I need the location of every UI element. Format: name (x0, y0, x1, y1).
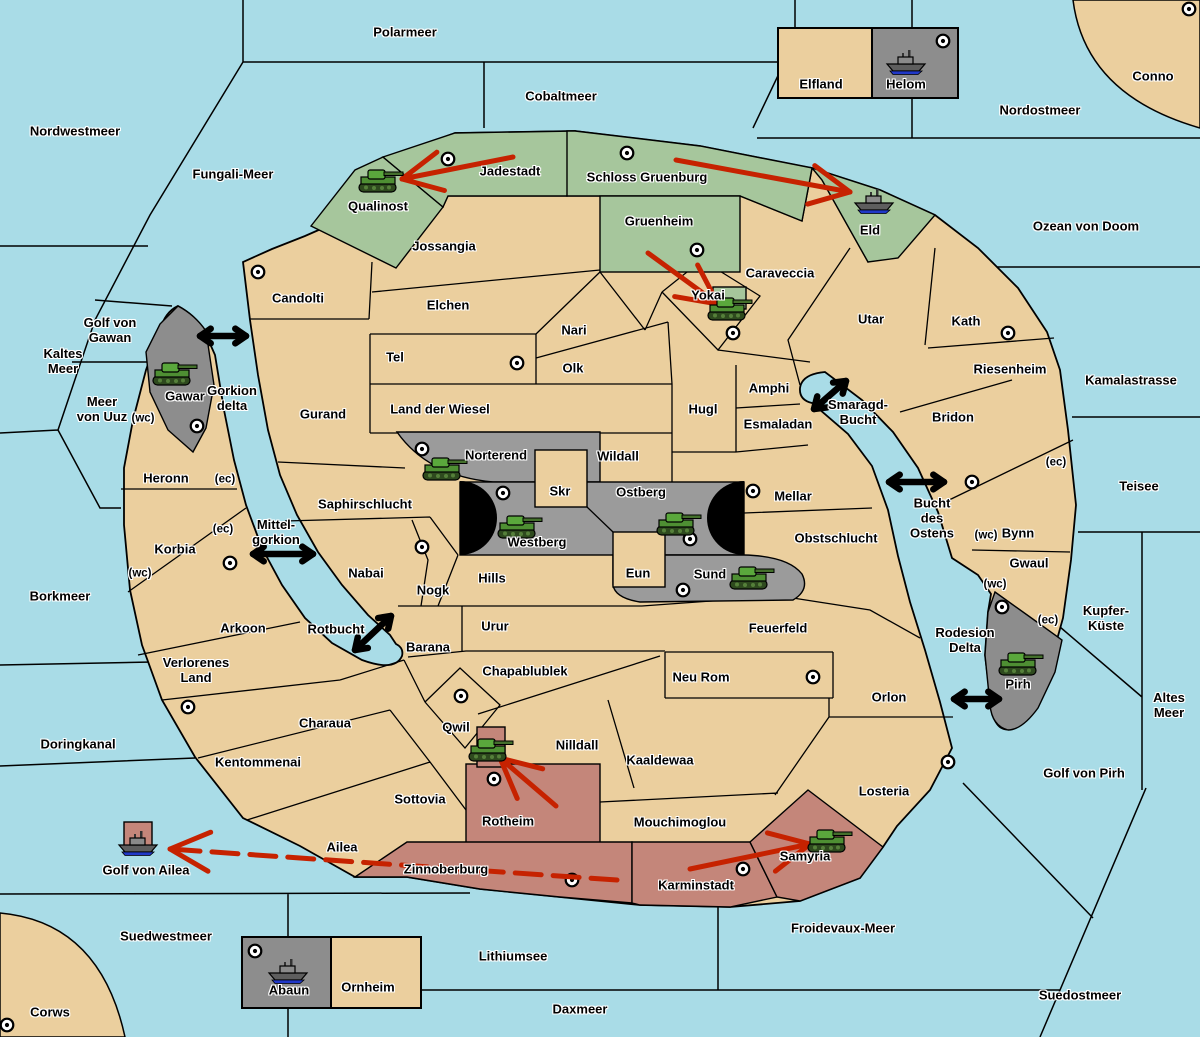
region-label-ostberg[interactable]: Ostberg (616, 486, 666, 501)
region-label-caraveccia[interactable]: Caraveccia (746, 267, 815, 282)
sea-label-ozean-von-doom[interactable]: Ozean von Doom (1033, 220, 1139, 235)
region-label-feuerfeld[interactable]: Feuerfeld (749, 622, 808, 637)
region-label-hills[interactable]: Hills (478, 572, 505, 587)
region-label-heronn[interactable]: Heronn (143, 472, 189, 487)
region-label-kaaldewaa[interactable]: Kaaldewaa (626, 754, 693, 769)
region-label-land-der-wiesel[interactable]: Land der Wiesel (390, 403, 490, 418)
region-label-tel[interactable]: Tel (386, 351, 404, 366)
coast-marker-label: (wc) (129, 567, 152, 580)
sea-label-kamalastrasse[interactable]: Kamalastrasse (1085, 374, 1177, 389)
region-label-urur[interactable]: Urur (481, 620, 508, 635)
region-label-pirh[interactable]: Pirh (1005, 678, 1030, 693)
region-label-bridon[interactable]: Bridon (932, 411, 974, 426)
region-label-neu-rom[interactable]: Neu Rom (672, 671, 729, 686)
city-marker-karminstadt[interactable] (737, 863, 750, 876)
region-label-samyria[interactable]: Samyria (780, 850, 831, 865)
city-marker-schloss-gruenburg[interactable] (621, 147, 634, 160)
region-label-skr[interactable]: Skr (550, 485, 571, 500)
region-label-gwaul[interactable]: Gwaul (1009, 557, 1048, 572)
sea-label-cobaltmeer[interactable]: Cobaltmeer (525, 90, 597, 105)
region-label-mouchimoglou[interactable]: Mouchimoglou (634, 816, 726, 831)
region-label-kentommenai[interactable]: Kentommenai (215, 756, 301, 771)
region-label-chapablublek[interactable]: Chapablublek (482, 665, 567, 680)
region-label-amphi[interactable]: Amphi (749, 382, 789, 397)
city-marker-abaun[interactable] (249, 945, 262, 958)
region-label-karminstadt[interactable]: Karminstadt (658, 879, 734, 894)
region-label-obstschlucht[interactable]: Obstschlucht (794, 532, 877, 547)
region-label-arkoon[interactable]: Arkoon (220, 622, 266, 637)
region-label-candolti[interactable]: Candolti (272, 292, 324, 307)
sea-label-polarmeer[interactable]: Polarmeer (373, 26, 437, 41)
region-label-riesenheim[interactable]: Riesenheim (974, 363, 1047, 378)
city-marker-yokai[interactable] (727, 327, 740, 340)
region-label-wildall[interactable]: Wildall (597, 450, 639, 465)
region-label-saphirschlucht[interactable]: Saphirschlucht (318, 498, 412, 513)
region-label-korbia[interactable]: Korbia (154, 543, 195, 558)
arrowhead (814, 407, 827, 409)
region-label-barana[interactable]: Barana (406, 641, 450, 656)
sea-label-suedwestmeer[interactable]: Suedwestmeer (120, 930, 212, 945)
sea-label-meer-von-uuz[interactable]: Meer von Uuz (77, 395, 128, 425)
arrowhead (170, 832, 211, 849)
region-conno-shape[interactable] (1073, 0, 1200, 128)
region-label-ailea[interactable]: Ailea (326, 841, 357, 856)
region-label-nilldall[interactable]: Nilldall (556, 739, 599, 754)
region-label-ornheim[interactable]: Ornheim (341, 981, 394, 996)
city-marker-jadestadt[interactable] (442, 153, 455, 166)
coast-marker-label: (wc) (132, 412, 155, 425)
city-marker-saphirschlucht[interactable] (416, 541, 429, 554)
region-label-abaun[interactable]: Abaun (269, 984, 309, 999)
region-label-corws[interactable]: Corws (30, 1006, 70, 1021)
sea-label-smaragd-bucht[interactable]: Smaragd- Bucht (828, 398, 888, 428)
sea-label-altes-meer[interactable]: Altes Meer (1153, 691, 1185, 721)
region-label-qwil[interactable]: Qwil (442, 721, 469, 736)
sea-label-golf-von-gawan[interactable]: Golf von Gawan (84, 316, 137, 346)
region-label-rotheim[interactable]: Rotheim (482, 815, 534, 830)
arrowhead (355, 648, 368, 650)
sea-label-lithiumsee[interactable]: Lithiumsee (479, 950, 548, 965)
city-marker-candolti[interactable] (252, 266, 265, 279)
city-marker-neu-rom[interactable] (807, 671, 820, 684)
region-label-orlon[interactable]: Orlon (872, 691, 907, 706)
sea-label-doringkanal[interactable]: Doringkanal (40, 738, 115, 753)
city-marker-kath[interactable] (1002, 327, 1015, 340)
region-label-losteria[interactable]: Losteria (859, 785, 910, 800)
sea-label-mittel-gorkion[interactable]: Mittel- gorkion (252, 518, 300, 548)
region-label-qualinost[interactable]: Qualinost (348, 200, 408, 215)
city-marker-gawar[interactable] (191, 420, 204, 433)
city-marker-conno[interactable] (1183, 3, 1196, 16)
coast-marker-label: (ec) (215, 473, 235, 486)
coast-marker-label: (ec) (1046, 456, 1066, 469)
region-label-nari[interactable]: Nari (561, 324, 586, 339)
sea-label-nordostmeer[interactable]: Nordostmeer (1000, 104, 1081, 119)
coast-marker-label: (ec) (213, 523, 233, 536)
city-marker-mellar[interactable] (747, 485, 760, 498)
sea-label-kaltes-meer[interactable]: Kaltes Meer (43, 347, 82, 377)
sea-label-daxmeer[interactable]: Daxmeer (553, 1003, 608, 1018)
region-label-eld[interactable]: Eld (860, 224, 880, 239)
region-label-charaua[interactable]: Charaua (299, 717, 351, 732)
coast-marker-label: (ec) (1038, 614, 1058, 627)
region-label-verlorenes-land[interactable]: Verlorenes Land (163, 656, 230, 686)
sea-label-kupfer-k-ste[interactable]: Kupfer- Küste (1083, 604, 1129, 634)
region-label-westberg[interactable]: Westberg (508, 536, 567, 551)
city-marker-corws[interactable] (1, 1019, 14, 1032)
region-label-utar[interactable]: Utar (858, 313, 884, 328)
region-label-mellar[interactable]: Mellar (774, 490, 812, 505)
region-label-schloss-gruenburg[interactable]: Schloss Gruenburg (587, 171, 708, 186)
region-label-nabai[interactable]: Nabai (348, 567, 383, 582)
city-marker-korbia[interactable] (224, 557, 237, 570)
city-marker-charaua[interactable] (182, 701, 195, 714)
city-marker-tel[interactable] (511, 357, 524, 370)
region-label-gurand[interactable]: Gurand (300, 408, 346, 423)
arrowhead (378, 616, 391, 618)
city-marker-westberg[interactable] (497, 487, 510, 500)
sea-label-bucht-des-ostens[interactable]: Bucht des Ostens (910, 497, 954, 542)
sea-label-fungali-meer[interactable]: Fungali-Meer (193, 168, 274, 183)
city-marker-rotheim[interactable] (488, 773, 501, 786)
sea-label-borkmeer[interactable]: Borkmeer (30, 590, 91, 605)
region-label-bynn[interactable]: Bynn (1002, 527, 1035, 542)
arrowhead (833, 381, 846, 383)
sea-label-golf-von-ailea[interactable]: Golf von Ailea (103, 864, 190, 879)
city-marker-qwil[interactable] (455, 690, 468, 703)
coast-marker-label: (wc) (984, 578, 1007, 591)
city-marker-losteria[interactable] (942, 756, 955, 769)
region-label-helom[interactable]: Helom (886, 78, 926, 93)
region-label-olk[interactable]: Olk (563, 362, 584, 377)
region-label-nogk[interactable]: Nogk (417, 584, 450, 599)
region-label-conno[interactable]: Conno (1132, 70, 1173, 85)
sea-label-suedostmeer[interactable]: Suedostmeer (1039, 989, 1121, 1004)
city-marker-gruenheim[interactable] (691, 244, 704, 257)
region-label-zinnoberburg[interactable]: Zinnoberburg (404, 863, 489, 878)
region-label-yokai[interactable]: Yokai (691, 289, 725, 304)
region-label-sottovia[interactable]: Sottovia (394, 793, 445, 808)
region-label-norterend[interactable]: Norterend (465, 449, 527, 464)
region-label-gruenheim[interactable]: Gruenheim (625, 215, 694, 230)
sea-label-teisee[interactable]: Teisee (1119, 480, 1159, 495)
city-marker-norterend[interactable] (416, 443, 429, 456)
sea-label-rotbucht[interactable]: Rotbucht (307, 623, 364, 638)
coast-marker-label: (wc) (975, 529, 998, 542)
sea-label-nordwestmeer[interactable]: Nordwestmeer (30, 125, 120, 140)
region-label-sund[interactable]: Sund (694, 568, 727, 583)
city-marker-sund[interactable] (677, 584, 690, 597)
sea-label-gorkion-delta[interactable]: Gorkion delta (207, 384, 257, 414)
sea-label-froidevaux-meer[interactable]: Froidevaux-Meer (791, 922, 895, 937)
map-canvas (0, 0, 1200, 1037)
region-label-gawar[interactable]: Gawar (165, 390, 205, 405)
region-label-eun[interactable]: Eun (626, 567, 651, 582)
region-label-jossangia[interactable]: Jossangia (412, 240, 476, 255)
city-marker-pirh[interactable] (996, 601, 1009, 614)
region-label-esmaladan[interactable]: Esmaladan (744, 418, 813, 433)
city-marker-helom[interactable] (937, 35, 950, 48)
sea-label-golf-von-pirh[interactable]: Golf von Pirh (1043, 767, 1125, 782)
region-label-kath[interactable]: Kath (952, 315, 981, 330)
region-label-hugl[interactable]: Hugl (689, 403, 718, 418)
city-marker-bynn[interactable] (966, 476, 979, 489)
region-label-jadestadt[interactable]: Jadestadt (480, 165, 541, 180)
game-map: PolarmeerCobaltmeerNordostmeerNordwestme… (0, 0, 1200, 1037)
sea-label-rodesion-delta[interactable]: Rodesion Delta (935, 626, 994, 656)
region-label-elfland[interactable]: Elfland (799, 78, 842, 93)
region-label-elchen[interactable]: Elchen (427, 299, 470, 314)
